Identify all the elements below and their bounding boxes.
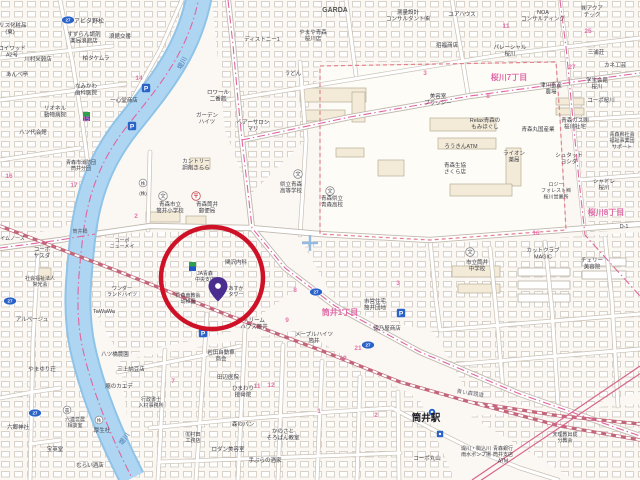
map-label: 徳乃屋商店 xyxy=(373,324,401,332)
map-label: あんべ亭 xyxy=(6,70,29,78)
map-label: 青森市立筒井小学校 xyxy=(156,200,184,215)
block-number: 2 xyxy=(134,213,138,220)
map-label: 青森丸国産業 xyxy=(521,125,555,133)
map-label: 浪館交番 xyxy=(109,32,132,40)
map-label: ロダン美容室 xyxy=(211,445,245,453)
map-label: ろうきんATM xyxy=(444,143,478,150)
svg-text:株: 株 xyxy=(141,180,146,187)
map-label: Relax青森のもみほぐし xyxy=(470,116,501,131)
map-label: 庵のカエデ xyxy=(105,382,133,390)
map-label: 厚生社 xyxy=(94,426,111,434)
svg-text:文: 文 xyxy=(467,248,473,256)
map-label: 青森県立青森高校 xyxy=(321,194,344,209)
map-label: なみかわ歯科医院 xyxy=(75,83,98,97)
map-label: 三上納豆店 xyxy=(117,365,145,373)
map-label: 八ツ代会館 xyxy=(19,128,47,136)
map-label: 青森ガス㈱桜川社宅 xyxy=(561,116,589,131)
map-label: カネ工芸 xyxy=(604,61,627,69)
map-label: 川村米穀店 xyxy=(24,55,52,63)
map-label: 柏タケムラ xyxy=(83,54,110,62)
map-label: 市立筒井中学校 xyxy=(466,258,489,273)
block-number: 16 xyxy=(532,230,540,237)
map-label: 県立青森高等学校 xyxy=(280,180,303,195)
block-number: 8 xyxy=(486,93,490,100)
svg-text:文: 文 xyxy=(295,170,301,178)
block-number: 15 xyxy=(82,116,90,123)
map-label: ㈱アクアテック xyxy=(581,4,603,19)
block-number: 11 xyxy=(503,23,510,30)
map-label: 青森生協さくら店 xyxy=(444,161,467,176)
block-number: 8 xyxy=(293,287,297,294)
svg-text:文: 文 xyxy=(160,192,166,200)
svg-text:27: 27 xyxy=(7,299,13,304)
svg-text:P: P xyxy=(201,330,206,337)
map-label: 行政書士入村事務所 xyxy=(138,396,163,409)
map-label: (株) xyxy=(139,190,147,197)
district-label: 筒井1丁目 xyxy=(322,307,358,317)
map-label: 青森筒井郵便局 xyxy=(196,200,219,215)
block-number: 27 xyxy=(568,64,576,71)
map-label: アルページュ xyxy=(16,316,48,323)
block-number: 1 xyxy=(317,408,321,415)
post-office-icon: 〒 xyxy=(192,192,201,201)
block-number: 3 xyxy=(396,280,400,287)
map-label: TaWaWa xyxy=(93,309,116,315)
block-number: 12 xyxy=(267,382,275,389)
circled-kanji-icon: 農 xyxy=(63,406,71,414)
block-number: 10 xyxy=(339,355,347,362)
parking-icon: P xyxy=(397,309,405,318)
map-label: 宝英堂 xyxy=(47,445,64,453)
store-sign-icon xyxy=(189,262,196,271)
svg-text:株: 株 xyxy=(97,417,102,424)
block-number: 16 xyxy=(5,173,13,180)
block-number: 17 xyxy=(70,182,78,189)
road-number-badge: 27 xyxy=(29,409,42,417)
map-label: 関沢内科 xyxy=(225,258,248,266)
district-label: 桜川7丁目 xyxy=(491,72,527,82)
map-label: すずらん調剤薬局浪館店 xyxy=(67,30,101,45)
svg-text:文: 文 xyxy=(327,187,333,195)
map-label: 筒井橋 xyxy=(72,228,87,235)
map-label: うどん xyxy=(285,69,302,77)
road-number-badge: 27 xyxy=(362,341,375,349)
map-label: むらい酒店 xyxy=(76,461,104,469)
circled-kanji-icon: 株 xyxy=(139,179,147,187)
school-icon: 文 xyxy=(326,187,335,196)
school-icon: 文 xyxy=(159,192,168,201)
map-label: ロワール二番館 xyxy=(207,89,230,103)
map-label: 招福商店 xyxy=(436,41,459,49)
road-number-badge: 27 xyxy=(310,288,323,296)
road-number-badge: 27 xyxy=(4,297,17,305)
svg-text:27: 27 xyxy=(32,411,38,416)
district-label: 桜川8丁目 xyxy=(588,207,624,217)
map-label: リオネル動物病院 xyxy=(44,105,67,119)
map-label: 六連営農相談室 xyxy=(65,416,85,429)
block-number: 14 xyxy=(135,75,143,82)
map-label: カントリー調剤きらら xyxy=(182,158,210,172)
svg-text:27: 27 xyxy=(365,343,371,348)
map-label: ㈲村田工務店 xyxy=(185,431,200,444)
map-label: 青森県社会福祉事業団サポート xyxy=(609,131,634,150)
map-label: 田辺医院 xyxy=(217,373,240,381)
map-label: 市営住宅筒井団地 xyxy=(364,297,387,312)
block-number: 21 xyxy=(354,345,362,352)
map-label: ユアハウス xyxy=(448,10,475,18)
map-label: あすかタワー xyxy=(228,285,243,298)
map-label: D-1 xyxy=(620,224,629,230)
parking-icon: P xyxy=(142,84,150,93)
station-facility-icon xyxy=(437,431,443,437)
svg-text:P: P xyxy=(130,123,135,130)
map-label: 六郷神社 xyxy=(7,423,30,431)
map-label: チェリー美容院 xyxy=(581,257,603,271)
map-label: ディストニー1 xyxy=(244,35,280,43)
svg-text:〒: 〒 xyxy=(193,193,199,200)
parking-icon: P xyxy=(128,122,136,131)
map-label: 三浦荘 xyxy=(588,48,605,56)
map-label: 手ぶらの酒家 xyxy=(248,456,282,464)
map-label: 八ツ橋農園 xyxy=(101,350,129,358)
map-label: コーポヤスダ xyxy=(34,246,51,260)
map-label: ひまわり接骨院 xyxy=(232,385,254,399)
map-canvas[interactable]: 2727272727PPPP文文文文〒株農株 アビタ野松すずらん調剤薬局浪館店ナ… xyxy=(0,0,640,480)
map-label: アビタ野松 xyxy=(74,17,104,25)
block-number: 9 xyxy=(285,317,289,324)
map-label: やまゆり荘 xyxy=(28,365,56,373)
block-number: 11 xyxy=(254,383,261,390)
map-label: ガーデンハイツ xyxy=(196,111,219,126)
road-number-badge: 27 xyxy=(62,16,75,24)
svg-text:農: 農 xyxy=(65,407,70,414)
svg-text:P: P xyxy=(144,85,149,92)
map-svg: 2727272727PPPP文文文文〒株農株 アビタ野松すずらん調剤薬局浪館店ナ… xyxy=(0,0,640,480)
school-icon: 文 xyxy=(294,170,303,179)
school-icon: 文 xyxy=(466,248,475,257)
svg-text:27: 27 xyxy=(313,290,319,295)
svg-text:P: P xyxy=(399,310,404,317)
svg-text:27: 27 xyxy=(65,18,71,23)
block-number: 3 xyxy=(423,70,427,77)
block-number: 2 xyxy=(374,412,378,419)
block-number: 7 xyxy=(171,378,175,385)
map-label: コーポ桜川 xyxy=(587,96,615,104)
station-name-label: 筒井駅 xyxy=(411,412,441,424)
block-number: 25 xyxy=(584,28,592,35)
map-label: 一心堂商店 xyxy=(110,96,138,104)
map-label: GARDA xyxy=(322,7,348,14)
map-label: コーポ丸山 xyxy=(413,454,441,462)
circled-kanji-icon: 株 xyxy=(95,416,103,424)
map-label: 堤川・駒込川雨水ポンプ場 xyxy=(461,445,491,458)
map-label: ハイムノース xyxy=(0,236,25,242)
map-label: 森のパン xyxy=(232,420,255,428)
